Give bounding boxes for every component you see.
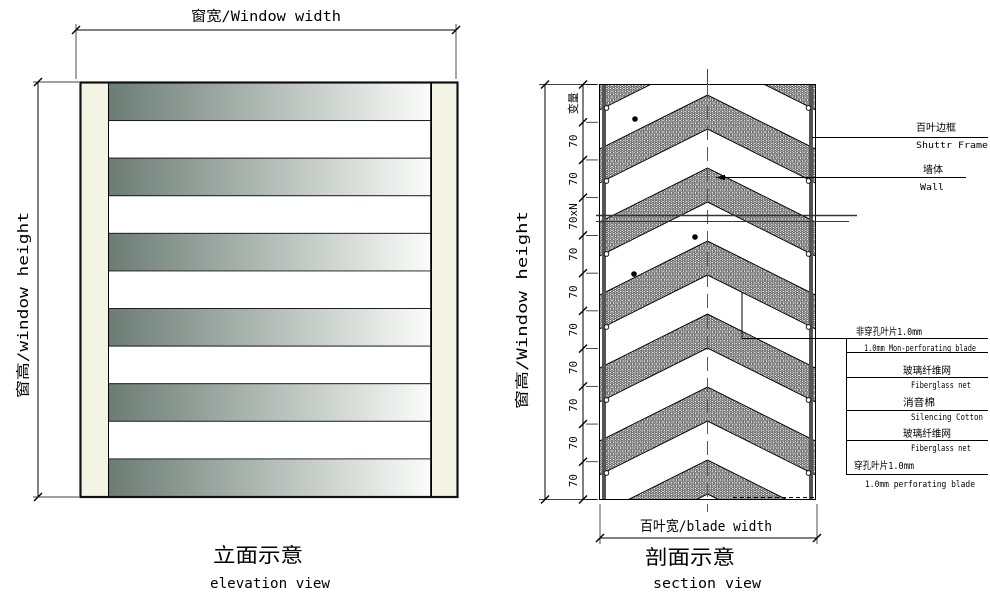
- dim-segment-label: 70: [567, 323, 580, 336]
- louver-blade: [109, 459, 431, 497]
- annotation-label-zh: 穿孔叶片1.0mm: [854, 459, 914, 472]
- louver-blade: [109, 421, 431, 459]
- dim-segment-label: 70xN: [567, 203, 580, 230]
- dim-segment-label: 70: [567, 285, 580, 298]
- blade-end-circle: [604, 398, 609, 403]
- dim-segment-label: 70: [567, 134, 580, 147]
- annotation-label-zh: 墙体: [923, 163, 943, 176]
- annotation-label-zh: 非穿孔叶片1.0mm: [856, 325, 922, 338]
- blade-end-circle: [604, 471, 609, 476]
- blade-end-circle: [604, 325, 609, 330]
- louver-blade: [109, 309, 431, 347]
- dim-segment-label: 70: [567, 399, 580, 412]
- louver-drawing: 窗宽/Window width 窗高/window height 立面示意 el…: [0, 0, 990, 599]
- louver-blade: [109, 158, 431, 196]
- blade-pitch-dim-chain: 变量707070xN70707070707070: [566, 81, 598, 504]
- blade-end-circle: [604, 252, 609, 257]
- blade-end-circle: [604, 106, 609, 111]
- section-view: [596, 22, 857, 548]
- blade-width-label: 百叶宽/blade width: [640, 518, 772, 535]
- dim-segment-label: 70: [567, 361, 580, 374]
- blade-end-circle: [806, 471, 811, 476]
- louver-blade: [109, 233, 431, 271]
- louver-blade: [109, 83, 431, 121]
- annotation-label-en: 1.0mm perforating blade: [865, 480, 975, 490]
- louver-blade: [109, 346, 431, 384]
- annotation-label-en: Fiberglass net: [911, 381, 971, 391]
- blade-end-circle: [806, 179, 811, 184]
- annotation-label-zh: 百叶边框: [916, 121, 956, 134]
- elevation-caption-zh: 立面示意: [213, 543, 303, 567]
- annotation-label-zh: 消音棉: [903, 396, 935, 409]
- annotation-label-zh: 玻璃纤维网: [903, 427, 951, 440]
- dim-segment-label: 变量: [566, 92, 580, 114]
- blade-end-circle: [806, 325, 811, 330]
- section-caption-en: section view: [653, 576, 762, 592]
- elevation-view: [81, 83, 458, 498]
- dim-segment-label: 70: [567, 248, 580, 261]
- elevation-caption-en: elevation view: [210, 576, 331, 592]
- annotation-label-zh: 玻璃纤维网: [903, 364, 951, 377]
- blade-end-circle: [806, 106, 811, 111]
- annotation-label-en: Silencing Cotton: [911, 413, 983, 423]
- dim-segment-label: 70: [567, 172, 580, 185]
- louver-blade: [109, 271, 431, 309]
- louver-blade: [109, 196, 431, 234]
- rivet-dot: [692, 234, 698, 240]
- rivet-dot: [632, 116, 638, 122]
- blade-end-circle: [806, 252, 811, 257]
- dim-segment-label: 70: [567, 474, 580, 487]
- section-caption-zh: 剖面示意: [645, 545, 735, 569]
- technical-drawing-page: 窗宽/Window width 窗高/window height 立面示意 el…: [0, 0, 990, 599]
- window-width-label: 窗宽/Window width: [191, 8, 341, 25]
- elevation-blades: [109, 83, 431, 497]
- elevation-right-frame: [430, 83, 456, 497]
- window-height-label-elevation: 窗高/window height: [15, 212, 32, 398]
- window-height-label-section: 窗高/Window height: [514, 211, 531, 409]
- annotation-label-en: Wall: [920, 183, 944, 193]
- elevation-left-frame: [82, 83, 108, 497]
- rivet-dot: [631, 271, 637, 277]
- annotation-label-en: Fiberglass net: [911, 444, 971, 454]
- dim-segment-label: 70: [567, 436, 580, 449]
- louver-blade: [109, 121, 431, 159]
- blade-end-circle: [806, 398, 811, 403]
- annotation-label-en: Shuttr Frame: [916, 141, 988, 151]
- louver-blade: [109, 384, 431, 422]
- blade-end-circle: [604, 179, 609, 184]
